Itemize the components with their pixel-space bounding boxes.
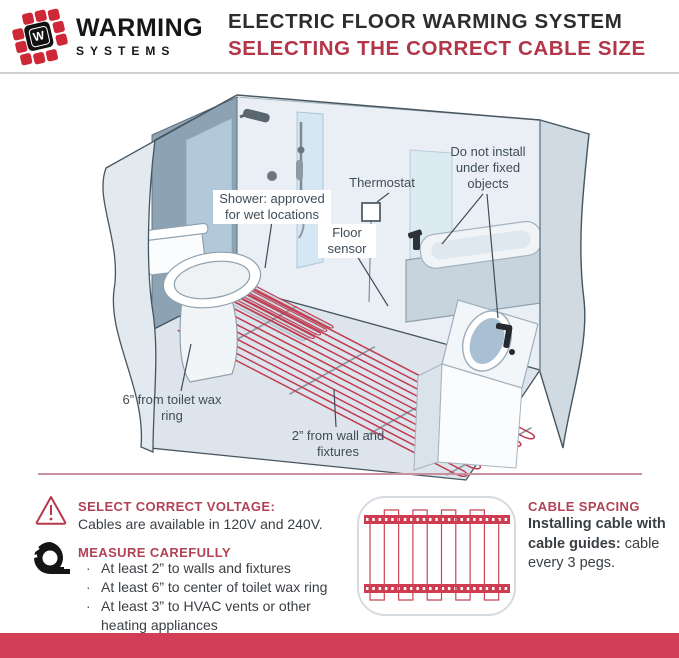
brand-subname: SYSTEMS <box>76 45 203 57</box>
label-wall-clearance: 2” from wall and fixtures <box>288 428 388 460</box>
bottom-accent-bar <box>0 633 679 658</box>
brand-logo: W WARMING SYSTEMS <box>14 6 210 66</box>
thermostat-icon <box>362 203 380 221</box>
label-floor-sensor: Floor sensor <box>318 224 376 258</box>
measure-heading: MEASURE CAREFULLY <box>78 545 231 560</box>
cable-guide-strip-bottom <box>364 584 510 593</box>
measure-bullet-list: At least 2” to walls and fixtures At lea… <box>84 559 352 635</box>
measure-bullet: At least 2” to walls and fixtures <box>84 559 352 578</box>
voltage-body: Cables are available in 120V and 240V. <box>78 515 323 534</box>
section-divider <box>38 473 642 475</box>
label-thermostat: Thermostat <box>332 175 432 191</box>
measure-bullet: At least 6” to center of toilet wax ring <box>84 578 352 597</box>
label-shower: Shower: approved for wet locations <box>213 190 331 224</box>
spacing-heading: CABLE SPACING <box>528 499 640 514</box>
spacing-body: Installing cable with cable guides: cabl… <box>528 515 670 574</box>
brand-name: WARMING <box>76 16 203 41</box>
measure-bullet: At least 3” to HVAC vents or other heati… <box>84 597 352 635</box>
logo-monogram-box: W <box>23 21 54 52</box>
voltage-heading: SELECT CORRECT VOLTAGE: <box>78 499 275 514</box>
warming-systems-logo-icon: W <box>9 6 71 68</box>
poster-title: ELECTRIC FLOOR WARMING SYSTEM <box>228 9 646 36</box>
warning-icon <box>34 494 68 527</box>
infographic-poster: W WARMING SYSTEMS ELECTRIC FLOOR WARMING… <box>0 0 679 658</box>
cable-guide-strip-top <box>364 515 510 524</box>
header: W WARMING SYSTEMS ELECTRIC FLOOR WARMING… <box>0 0 679 74</box>
logo-monogram: W <box>27 25 50 48</box>
label-fixed-objects: Do not install under fixed objects <box>436 144 540 192</box>
tape-measure-icon <box>30 540 74 582</box>
poster-subtitle: SELECTING THE CORRECT CABLE SIZE <box>228 36 646 63</box>
label-toilet-clearance: 6” from toilet wax ring <box>122 392 222 424</box>
bathroom-diagram <box>0 74 679 488</box>
